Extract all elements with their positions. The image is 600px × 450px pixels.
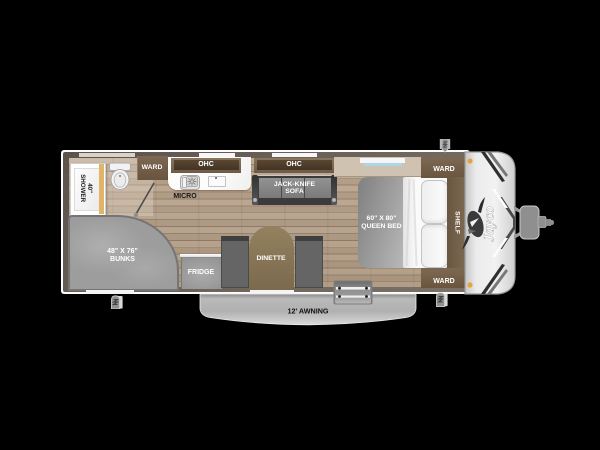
svg-text:Jayco: Jayco xyxy=(482,206,498,243)
svg-text:12' AWNING: 12' AWNING xyxy=(288,306,329,315)
